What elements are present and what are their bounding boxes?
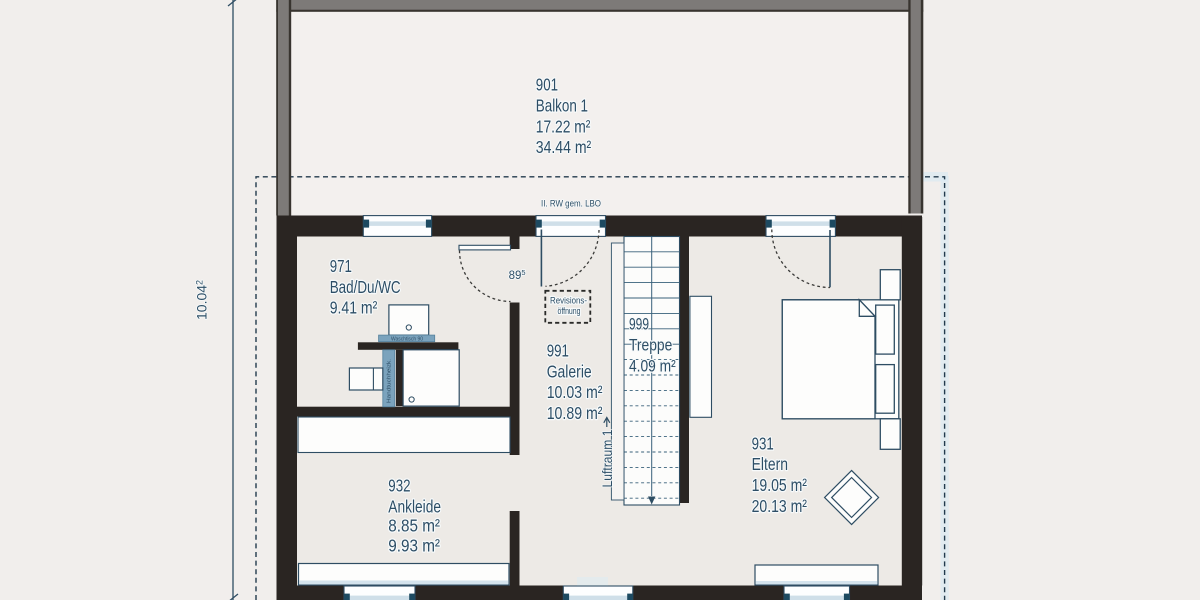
svg-text:Luftraum 1: Luftraum 1 [599,429,615,487]
svg-text:8.85 m²: 8.85 m² [388,516,440,536]
svg-text:Treppe: Treppe [629,335,672,354]
svg-text:Galerie: Galerie [547,361,592,381]
svg-text:932: 932 [388,476,410,496]
svg-text:Handtuchheizk.: Handtuchheizk. [387,359,393,403]
svg-text:Waschtisch 90: Waschtisch 90 [391,337,423,343]
svg-text:34.44 m²: 34.44 m² [536,137,592,157]
svg-text:971: 971 [330,256,352,276]
svg-text:10.042: 10.042 [194,280,210,320]
svg-text:II. RW gem. LBO: II. RW gem. LBO [541,199,601,209]
svg-text:991: 991 [547,340,569,360]
svg-text:Bad/Du/WC: Bad/Du/WC [330,277,401,297]
svg-text:901: 901 [536,75,558,95]
svg-text:Revisions-: Revisions- [550,296,587,306]
svg-text:9.41 m²: 9.41 m² [330,298,378,318]
svg-text:931: 931 [752,433,774,453]
svg-text:999: 999 [629,315,649,334]
svg-text:9.93 m²: 9.93 m² [388,536,440,556]
svg-text:20.13 m²: 20.13 m² [752,496,808,516]
svg-text:4.09 m²: 4.09 m² [629,356,676,375]
svg-text:öffnung: öffnung [558,306,581,316]
svg-text:Ankleide: Ankleide [388,496,441,516]
svg-text:10.89 m²: 10.89 m² [547,403,603,423]
svg-text:10.03 m²: 10.03 m² [547,382,603,402]
svg-text:17.22 m²: 17.22 m² [536,116,591,136]
svg-text:19.05 m²: 19.05 m² [752,475,808,495]
svg-text:Balkon 1: Balkon 1 [536,96,588,116]
svg-text:Eltern: Eltern [752,454,788,474]
